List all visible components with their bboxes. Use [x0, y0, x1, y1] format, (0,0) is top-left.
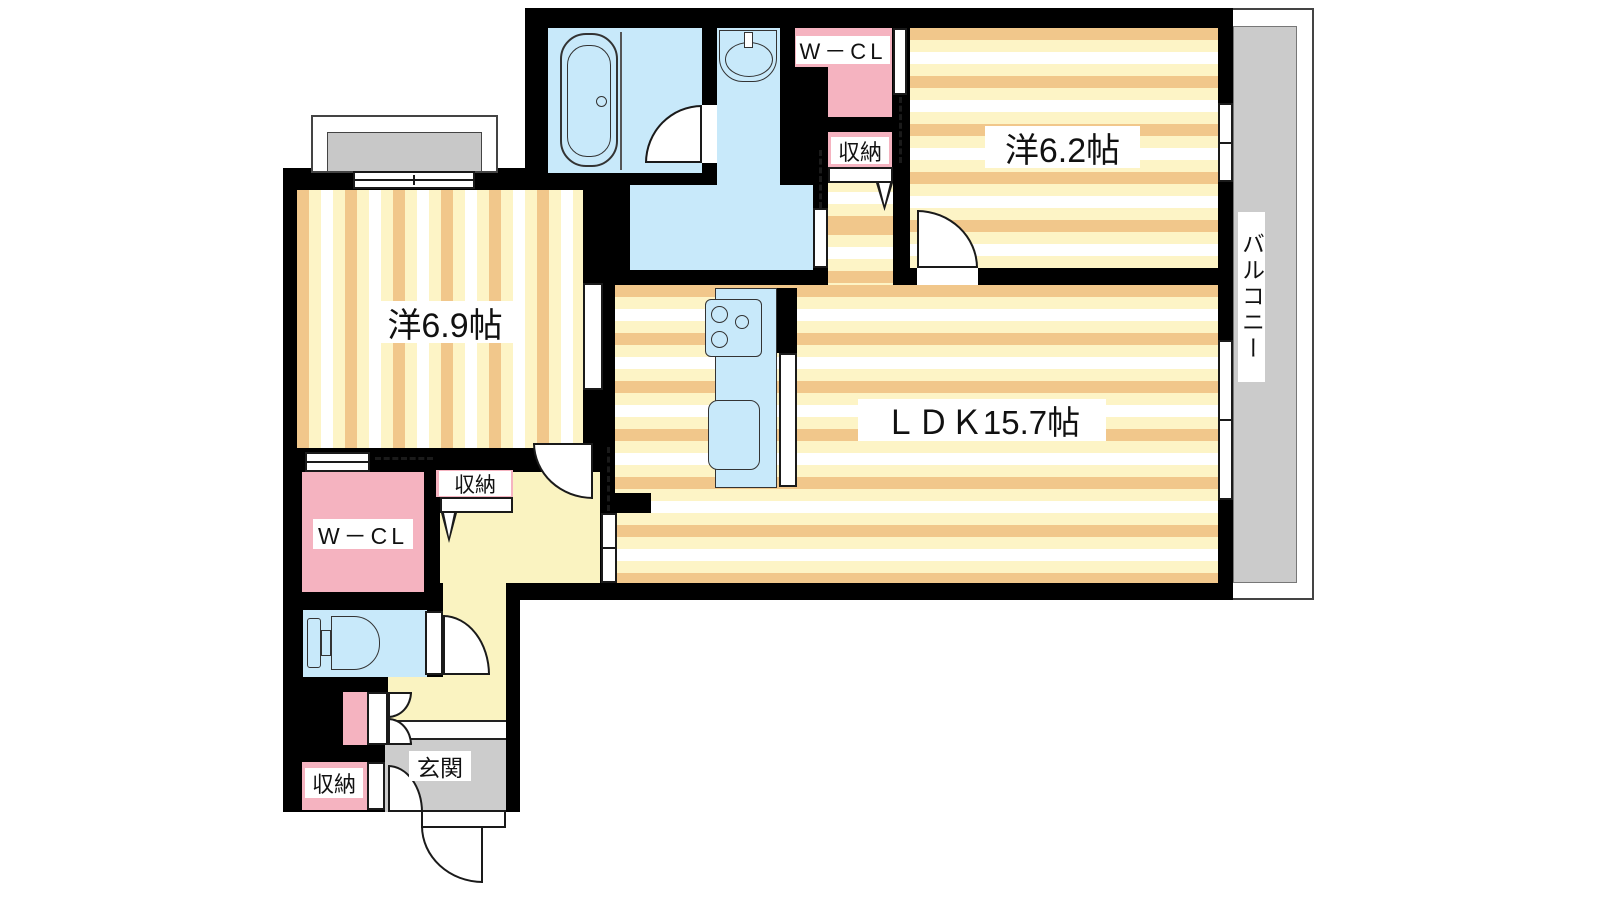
- window-west-6-9-top: [353, 171, 475, 189]
- toilet-door-leaf: [425, 611, 443, 675]
- closet-strip-area: [343, 692, 367, 745]
- balcony-label: バルコニー: [1238, 212, 1265, 382]
- kitchen-sink-icon: [708, 400, 760, 470]
- entrance-door-arc: [421, 826, 483, 883]
- storage-mid-label: 収納: [439, 471, 511, 496]
- pocket-door-ldk-hall: [601, 513, 617, 583]
- sliding-door-west-6-9: [375, 457, 433, 460]
- window-washroom-corridor: [813, 208, 828, 268]
- room-west-6-2-label: 洋6.2帖: [985, 126, 1140, 168]
- kitchen-wall-nub: [777, 288, 797, 353]
- room-west-6-9-label: 洋6.9帖: [370, 301, 520, 343]
- toilet-bowl-icon: [331, 616, 380, 670]
- west-6-2-door-opening: [917, 268, 978, 285]
- bath-door-opening: [700, 105, 717, 163]
- stove-burner-icon: [711, 306, 728, 323]
- closet-strip-door: [367, 692, 388, 745]
- washroom-floor-lower: [630, 185, 813, 270]
- storage-mid-door: [440, 497, 513, 513]
- entrance-label: 玄関: [409, 751, 471, 781]
- floor-plan: 洋6.2帖 洋6.9帖 ＬＤＫ15.7帖 バルコニー W－CL W－CL 収納 …: [0, 0, 1600, 900]
- band-west-6-9-right: [583, 283, 603, 390]
- kitchen-counter-front: [779, 353, 797, 487]
- sliding-door-west-6-2: [899, 97, 902, 163]
- band-wcl-top-right: [893, 28, 907, 95]
- window-west-6-2-balcony: [1218, 103, 1233, 182]
- sliding-door-ldk-hall: [607, 447, 610, 511]
- window-ldk-balcony: [1218, 340, 1233, 500]
- sliding-door-washroom: [819, 150, 822, 208]
- stove-burner-icon: [711, 331, 728, 348]
- closet-band-west-6-9: [305, 452, 370, 472]
- storage-bottom-label: 収納: [305, 768, 363, 798]
- storage-bottom-door: [367, 762, 385, 810]
- wcl-bottom-label: W－CL: [313, 519, 413, 549]
- wcl-top-label: W－CL: [796, 36, 890, 64]
- ldk-wall-nub: [615, 493, 651, 513]
- bathtub-drain-icon: [596, 96, 607, 107]
- wall-hall-bottom: [505, 583, 605, 600]
- wcl-top-area-ext: [828, 67, 892, 117]
- toilet-seat-icon: [321, 630, 331, 656]
- stove-burner-icon: [735, 315, 749, 329]
- bathtub-deck-line: [620, 32, 622, 170]
- storage-top-label: 収納: [831, 137, 889, 164]
- bay-window-glass: [327, 132, 482, 172]
- washbasin-tap-icon: [744, 32, 753, 48]
- toilet-tank-icon: [307, 618, 321, 668]
- storage-top-door: [828, 167, 893, 183]
- room-ldk-label: ＬＤＫ15.7帖: [858, 399, 1106, 441]
